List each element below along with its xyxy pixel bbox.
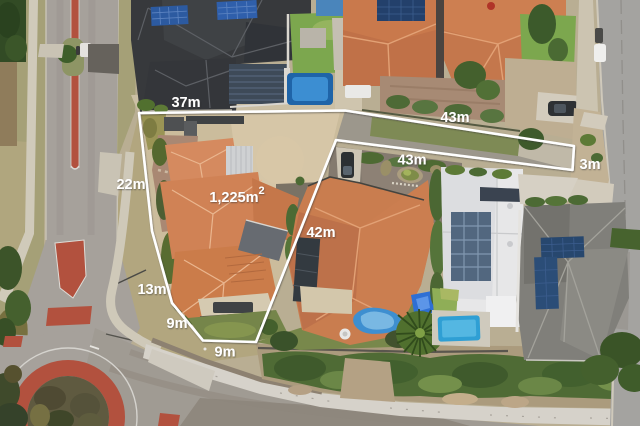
svg-text:9m: 9m [215, 345, 236, 361]
svg-text:43m: 43m [397, 153, 426, 169]
svg-text:22m: 22m [116, 177, 145, 193]
svg-text:42m: 42m [306, 225, 335, 241]
svg-text:3m: 3m [580, 157, 601, 173]
svg-text:13m: 13m [137, 282, 166, 298]
svg-text:9m: 9m [167, 316, 188, 332]
svg-text:43m: 43m [440, 110, 469, 126]
svg-text:37m: 37m [171, 95, 200, 111]
